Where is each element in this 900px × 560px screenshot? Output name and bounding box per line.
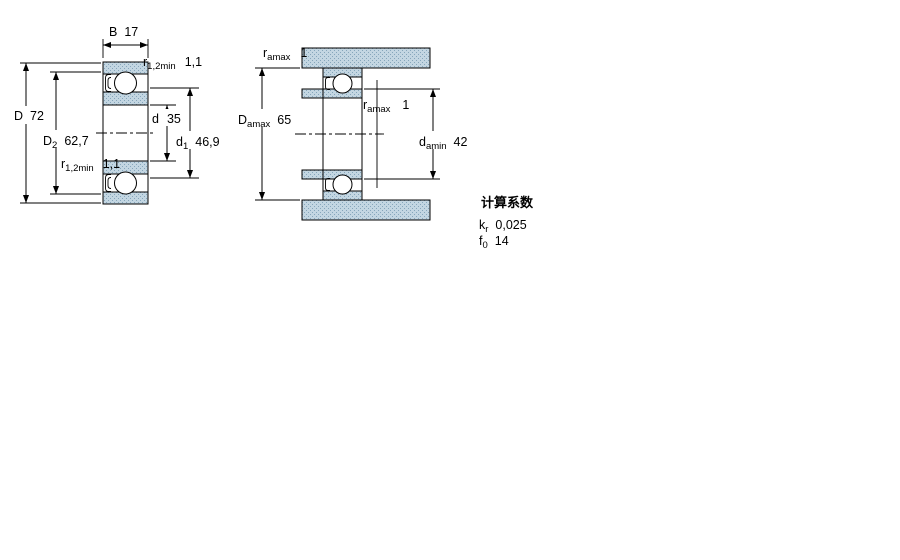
abutment-shoulder-bottom	[302, 170, 323, 179]
factor-f0: f014	[479, 234, 509, 251]
shaft-section	[302, 200, 430, 220]
calculation-factors-title: 计算系数	[481, 195, 534, 210]
dim-label-d: d35	[152, 112, 181, 126]
dim-label-ramax-shaft: ramax1	[363, 98, 409, 115]
dim-label-r12min-top: r1,2min1,1	[143, 55, 202, 72]
abutment-view: Damax65 ramax1 ramax1 damin42	[236, 46, 472, 220]
dim-recess-diameter-D2: D262,7	[41, 72, 101, 194]
dim-label-d1: d146,9	[176, 135, 220, 152]
dim-shoulder-diameter-d1: d146,9	[150, 88, 225, 178]
ball-bottom	[115, 172, 137, 194]
bearing-technical-drawing: B17 r1,2min1,1 D72 D262,7 d35	[0, 0, 900, 560]
shield-bottom-inner	[108, 178, 111, 189]
factor-kr: kr0,025	[479, 218, 527, 235]
ball-top	[333, 74, 352, 93]
dim-width-B: B17	[103, 25, 148, 58]
dim-label-D2: D262,7	[43, 134, 89, 151]
ball-bottom	[333, 175, 352, 194]
ball-top	[115, 72, 137, 94]
dim-label-ramax-top: ramax1	[263, 46, 307, 63]
shield-top-inner	[108, 78, 111, 89]
bearing-cross-section-mounted	[295, 68, 384, 200]
housing-section	[302, 48, 430, 68]
dim-label-B: B17	[109, 25, 138, 39]
drawing-canvas: B17 r1,2min1,1 D72 D262,7 d35	[0, 0, 900, 560]
calculation-factors: 计算系数 kr0,025 f014	[479, 195, 534, 251]
shield-top	[326, 78, 331, 90]
bearing-cross-section	[96, 62, 155, 204]
shield-bottom	[326, 179, 331, 191]
main-view: B17 r1,2min1,1 D72 D262,7 d35	[12, 25, 225, 204]
abutment-shoulder-top	[302, 89, 323, 98]
dim-housing-abutment-Da: Damax65	[236, 68, 300, 200]
